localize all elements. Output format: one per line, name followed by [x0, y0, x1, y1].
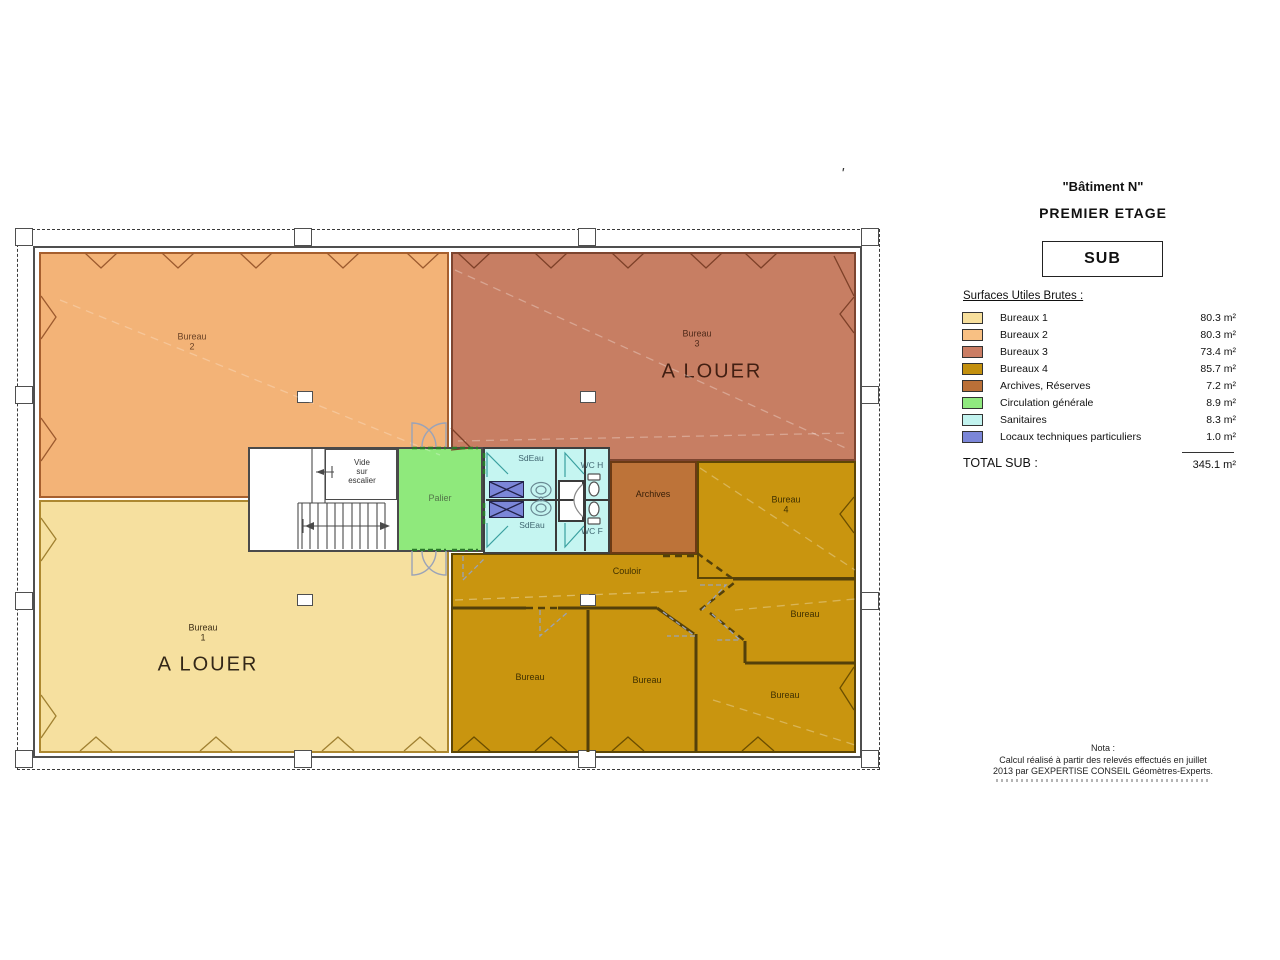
label-bureau-emid: Bureau	[790, 609, 819, 619]
label-bureau-sw: Bureau	[515, 672, 544, 682]
column	[580, 594, 596, 606]
label-wc-h: WC H	[581, 461, 604, 471]
total-value: 345.1 m²	[1166, 459, 1236, 471]
label-sdeau-bottom: SdEau	[519, 521, 545, 531]
boundary-pillar	[861, 386, 879, 404]
label-bureau-3: Bureau3	[682, 329, 711, 350]
tick-mark: '	[841, 165, 844, 182]
building-title: "Bâtiment N"	[960, 179, 1246, 194]
legend-value: 8.9 m²	[1206, 397, 1236, 409]
legend-swatch	[962, 431, 983, 443]
legend-label: Circulation générale	[1000, 397, 1206, 409]
local-technique-1	[489, 481, 524, 498]
legend-value: 7.2 m²	[1206, 380, 1236, 392]
label-palier: Palier	[428, 493, 451, 503]
legend-label: Bureaux 4	[1000, 363, 1200, 375]
boundary-pillar	[861, 228, 879, 246]
label-vide-sur-escalier: Vide sur escalier	[348, 458, 376, 486]
legend-row: Locaux techniques particuliers 1.0 m²	[962, 428, 1236, 445]
boundary-pillar	[15, 386, 33, 404]
nota-clipped-line	[996, 779, 1210, 782]
boundary-pillar	[294, 228, 312, 246]
label-bureau-1: Bureau1	[188, 623, 217, 644]
legend-row: Archives, Réserves 7.2 m²	[962, 377, 1236, 394]
legend-label: Sanitaires	[1000, 414, 1206, 426]
legend-swatch	[962, 397, 983, 409]
legend-value: 8.3 m²	[1206, 414, 1236, 426]
legend-swatch	[962, 380, 983, 392]
legend-value: 73.4 m²	[1200, 346, 1236, 358]
label-archives: Archives	[636, 489, 671, 499]
legend-swatch	[962, 346, 983, 358]
total-rule	[1182, 452, 1234, 453]
local-technique-2	[489, 501, 524, 518]
column	[297, 594, 313, 606]
label-bureau-smid: Bureau	[632, 675, 661, 685]
column	[580, 391, 596, 403]
room-bureau-4-zone	[451, 553, 856, 753]
nota-line: 2013 par GEXPERTISE CONSEIL Géomètres-Ex…	[955, 766, 1251, 778]
boundary-pillar	[861, 592, 879, 610]
legend-rows: Bureaux 1 80.3 m² Bureaux 2 80.3 m² Bure…	[962, 309, 1236, 445]
label-a-louer-1: A LOUER	[158, 654, 259, 677]
label-bureau-2: Bureau2	[177, 332, 206, 353]
legend-label: Bureaux 2	[1000, 329, 1200, 341]
nota-title: Nota :	[955, 743, 1251, 755]
room-archives	[610, 461, 697, 554]
legend-row: Circulation générale 8.9 m²	[962, 394, 1236, 411]
legend-label: Locaux techniques particuliers	[1000, 431, 1206, 443]
label-sdeau-top: SdEau	[518, 454, 544, 464]
boundary-pillar	[578, 228, 596, 246]
floorplan-page: Bureau2 Bureau1 A LOUER Bureau3 A LOUER …	[0, 0, 1280, 960]
legend-label: Bureaux 1	[1000, 312, 1200, 324]
legend-row: Sanitaires 8.3 m²	[962, 411, 1236, 428]
legend-row: Bureaux 2 80.3 m²	[962, 326, 1236, 343]
boundary-pillar	[15, 750, 33, 768]
legend-value: 1.0 m²	[1206, 431, 1236, 443]
label-a-louer-3: A LOUER	[662, 361, 763, 384]
nota-block: Nota : Calcul réalisé à partir des relev…	[955, 743, 1251, 782]
boundary-pillar	[578, 750, 596, 768]
sub-box: SUB	[1042, 241, 1163, 277]
room-bureau-4	[697, 461, 856, 579]
total-label: TOTAL SUB :	[963, 456, 1038, 470]
legend-swatch	[962, 414, 983, 426]
boundary-pillar	[861, 750, 879, 768]
room-bureau-3	[451, 252, 856, 461]
legend-swatch	[962, 312, 983, 324]
legend-header: Surfaces Utiles Brutes :	[963, 290, 1083, 302]
legend-value: 85.7 m²	[1200, 363, 1236, 375]
nota-line: Calcul réalisé à partir des relevés effe…	[955, 755, 1251, 767]
sub-label: SUB	[1084, 250, 1121, 268]
legend-row: Bureaux 4 85.7 m²	[962, 360, 1236, 377]
shower-tray	[558, 480, 584, 522]
label-bureau-se: Bureau	[770, 690, 799, 700]
label-wc-f: WC F	[581, 527, 603, 537]
legend-label: Bureaux 3	[1000, 346, 1200, 358]
legend-swatch	[962, 329, 983, 341]
floor-title: PREMIER ETAGE	[960, 205, 1246, 221]
column	[297, 391, 313, 403]
legend-row: Bureaux 3 73.4 m²	[962, 343, 1236, 360]
legend-swatch	[962, 363, 983, 375]
legend-label: Archives, Réserves	[1000, 380, 1206, 392]
legend-value: 80.3 m²	[1200, 329, 1236, 341]
label-bureau-4: Bureau4	[771, 495, 800, 516]
legend-value: 80.3 m²	[1200, 312, 1236, 324]
boundary-pillar	[15, 228, 33, 246]
boundary-pillar	[294, 750, 312, 768]
label-couloir: Couloir	[613, 566, 642, 576]
legend-row: Bureaux 1 80.3 m²	[962, 309, 1236, 326]
boundary-pillar	[15, 592, 33, 610]
